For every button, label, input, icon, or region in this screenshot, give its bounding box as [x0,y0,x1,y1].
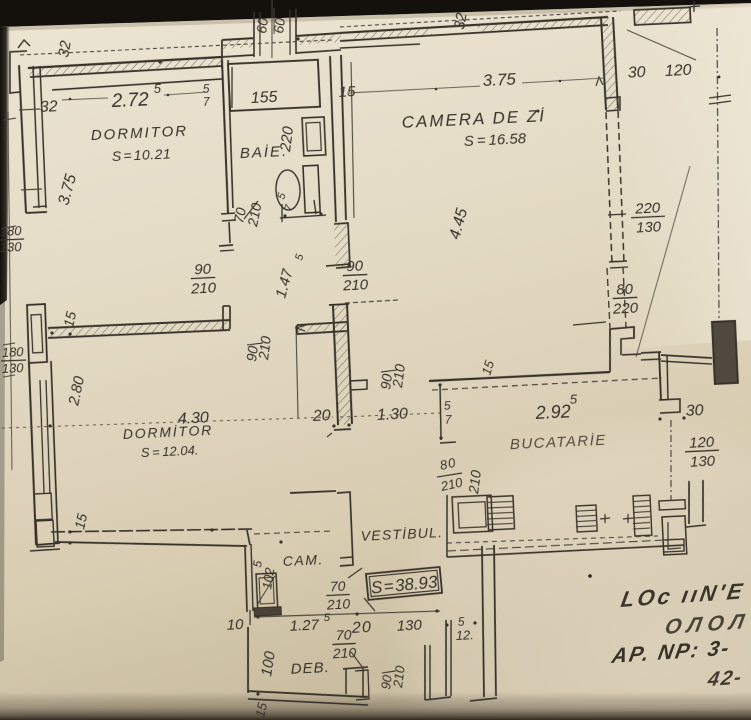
svg-text:3.75: 3.75 [482,69,516,90]
svg-text:120: 120 [689,433,715,451]
svg-text:130: 130 [0,239,23,255]
svg-text:210: 210 [342,276,369,294]
svg-text:210: 210 [465,469,484,495]
svg-text:5: 5 [444,399,452,413]
svg-text:80: 80 [616,281,634,299]
svg-text:180: 180 [0,223,23,239]
svg-text:130: 130 [636,218,662,236]
svg-text:32: 32 [39,98,58,116]
svg-text:42-: 42- [705,667,745,691]
svg-text:90: 90 [346,258,364,276]
svg-text:70: 70 [329,578,346,595]
svg-text:180: 180 [1,344,24,360]
svg-text:32: 32 [55,39,75,59]
svg-text:130: 130 [690,452,716,470]
svg-text:CAM.: CAM. [282,551,324,569]
svg-text:220: 220 [612,299,639,317]
svg-text:210: 210 [255,335,274,361]
svg-text:S = 12.04.: S = 12.04. [140,442,198,460]
svg-text:1.30: 1.30 [376,406,408,424]
svg-text:10: 10 [226,616,244,634]
svg-text:2 0: 2 0 [350,619,371,637]
svg-text:DEB.: DEB. [290,659,330,678]
svg-text:20: 20 [311,407,331,425]
svg-text:210: 210 [190,279,217,297]
svg-text:60: 60 [253,17,271,35]
svg-text:30: 30 [627,64,646,82]
svg-text:130: 130 [396,617,422,635]
svg-text:2.92: 2.92 [534,401,571,423]
svg-text:210: 210 [331,644,356,661]
svg-text:120: 120 [664,62,692,80]
svg-text:90: 90 [194,261,212,279]
svg-text:15: 15 [338,83,356,101]
svg-text:S = 16.58: S = 16.58 [463,130,527,150]
svg-text:210: 210 [390,664,408,689]
svg-text:210: 210 [389,363,408,389]
svg-text:BAİE.: BAİE. [239,143,288,162]
svg-text:60: 60 [270,17,288,35]
svg-text:70: 70 [335,627,352,644]
svg-text:130: 130 [1,360,24,376]
svg-text:S = 10.21: S = 10.21 [111,145,171,164]
svg-text:32: 32 [451,11,471,31]
svg-text:12.: 12. [455,627,474,643]
svg-text:155: 155 [250,89,278,107]
svg-text:1.27: 1.27 [289,617,320,635]
svg-text:220: 220 [634,199,661,217]
svg-text:2.72: 2.72 [110,89,149,112]
svg-text:210: 210 [325,595,350,612]
svg-text:30: 30 [685,402,704,420]
